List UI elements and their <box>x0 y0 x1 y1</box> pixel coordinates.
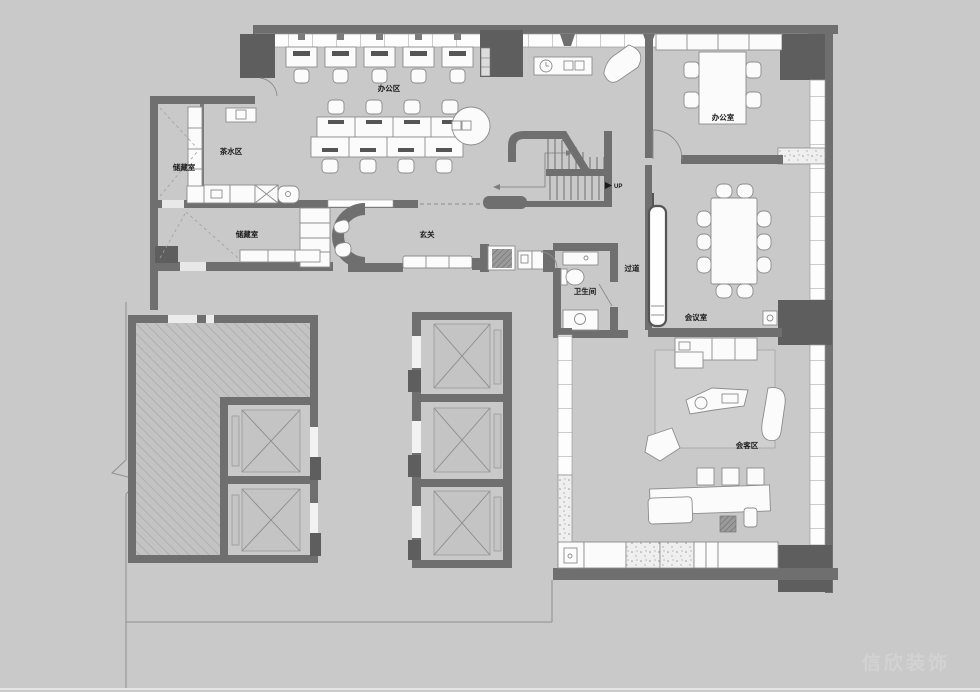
meeting-south-wall <box>648 328 782 337</box>
photo-bottom-edge <box>0 688 980 690</box>
office-area-desk-cluster <box>311 100 490 173</box>
reception-partition <box>558 328 572 568</box>
right-window-band-reception <box>810 345 825 545</box>
bathroom-east-wall-lower <box>610 307 618 330</box>
door-leaf-bathroom-east <box>599 284 612 306</box>
door-jamb <box>408 540 421 560</box>
shaft-wall <box>412 312 512 320</box>
void-west-wall <box>128 315 136 563</box>
room-label-tea-area: 茶水区 <box>219 146 243 156</box>
stair-up-label: UP <box>614 184 622 190</box>
door-jamb <box>310 533 321 556</box>
room-label-entry-hall: 玄关 <box>420 229 435 239</box>
tea-block-top-wall <box>150 96 255 104</box>
elevator-car <box>434 324 501 388</box>
shaft-wall <box>412 394 512 402</box>
media-cabinet <box>649 206 666 326</box>
corner-column-top-left <box>240 34 275 78</box>
void-wall-window <box>168 315 197 323</box>
conference-table <box>711 198 757 284</box>
room-label-storage-1: 储藏室 <box>173 162 196 172</box>
void-east-wall-upper <box>310 315 318 405</box>
desk-chair <box>328 100 344 114</box>
round-table-seat <box>452 121 461 130</box>
staircase: UP <box>483 131 622 209</box>
ac-sill-unit <box>778 148 825 164</box>
top-wall <box>253 25 838 34</box>
console-table <box>534 57 592 75</box>
bar-counter-low <box>648 497 693 525</box>
desk-chair <box>366 100 382 114</box>
office-wall-cabinet <box>656 34 782 50</box>
bathroom-counter <box>563 252 598 265</box>
elevator-car <box>434 408 501 472</box>
toilet-bowl <box>566 269 584 285</box>
right-column-middle <box>778 300 832 345</box>
office-chair <box>684 62 699 78</box>
round-table-seat <box>462 121 471 130</box>
stair-treads-upper <box>548 139 604 169</box>
elevator-car <box>434 491 501 555</box>
office-chair <box>746 92 761 108</box>
elevators-left <box>220 397 321 563</box>
desk-chair <box>398 159 414 173</box>
shoe-bench <box>403 256 472 268</box>
shaft-wall <box>220 476 318 484</box>
stool <box>747 468 764 485</box>
door-swing-tea-entry <box>260 78 277 96</box>
office-chair <box>684 92 699 108</box>
curved-feature-wall <box>332 203 365 269</box>
elevator-door-opening <box>310 427 318 457</box>
elevator-door-opening <box>412 336 421 368</box>
elevators-middle <box>408 312 512 568</box>
room-label-corridor: 过道 <box>625 263 640 273</box>
partition-cap <box>558 328 572 335</box>
elevator-door-opening <box>412 506 421 538</box>
floor-outlet-box <box>763 311 777 325</box>
bottom-cabinet-row <box>558 542 778 568</box>
floor-plan-canvas: UP <box>0 0 980 692</box>
bathroom-west-wall <box>553 268 561 338</box>
door-jamb <box>408 370 421 392</box>
dark-equipment-box <box>155 246 178 263</box>
elevator-car <box>232 489 300 551</box>
walk-line-arrow-start <box>493 184 500 190</box>
bathroom <box>480 243 628 338</box>
glass-partition <box>558 335 572 475</box>
stair-curved-wall <box>508 131 590 170</box>
tea-sink <box>278 186 299 203</box>
room-label-bathroom: 卫生间 <box>574 286 597 296</box>
desk-chair <box>442 100 458 114</box>
niche-cabinet <box>518 251 532 269</box>
office-south-wall <box>681 155 783 164</box>
elevator-car <box>232 410 300 472</box>
floor-plan-drawing: UP <box>0 0 980 692</box>
private-office-room <box>645 34 823 164</box>
shaft-wall <box>412 479 512 487</box>
door-jamb <box>408 455 421 477</box>
mirror-hatch <box>492 249 512 268</box>
office-chair <box>746 62 761 78</box>
entry-hall <box>332 203 483 272</box>
tea-appliance-cabinet <box>204 185 230 203</box>
room-label-meeting-room: 会议室 <box>685 312 708 322</box>
desk-chair <box>360 159 376 173</box>
storage2-door-opening <box>180 262 206 271</box>
meeting-room <box>645 165 782 337</box>
watermark-text: 信欣装饰 <box>862 651 950 674</box>
room-label-reception: 会客区 <box>736 440 759 450</box>
elevator-door-opening <box>412 421 421 453</box>
bathroom-north-wall <box>553 243 618 251</box>
decor-blob-2 <box>335 243 351 257</box>
room-label-office-area: 办公区 <box>378 83 401 93</box>
shaft-wall <box>503 312 512 568</box>
bottom-wall-right <box>553 568 838 580</box>
shaft-wall <box>412 560 512 568</box>
room-label-private-office: 办公室 <box>712 112 735 122</box>
elevator-door-opening <box>310 503 318 533</box>
stair-right-wall <box>604 131 612 207</box>
stool <box>722 468 739 485</box>
stool <box>697 468 714 485</box>
door-jamb <box>310 457 321 480</box>
vanity-sink <box>563 310 598 330</box>
void-wall-window <box>206 315 214 323</box>
shaft-wall <box>220 555 318 563</box>
right-window-band-office <box>810 80 825 152</box>
void-north-wall <box>128 315 318 323</box>
bar-stool <box>744 508 757 527</box>
bathroom-east-wall-upper <box>610 251 618 282</box>
door-swing-office <box>653 130 682 159</box>
stone-partition <box>558 475 572 545</box>
cabinet-shelf-column <box>481 48 490 76</box>
right-window-band-meeting <box>810 164 825 300</box>
chaise-lounge <box>599 40 646 90</box>
storage-door-opening <box>162 200 184 208</box>
entry-south-wall <box>348 263 403 272</box>
desk-chair <box>436 159 452 173</box>
stone-stool <box>720 516 736 532</box>
stair-mid-rail <box>546 169 612 176</box>
reception-area <box>558 338 785 568</box>
desk-chair <box>322 159 338 173</box>
stair-treads-lower <box>550 176 599 200</box>
room-label-storage-2: 储藏室 <box>236 229 259 239</box>
stair-bottom-rail <box>515 201 612 207</box>
shaft-wall <box>220 397 318 405</box>
corner-sofa-dark <box>782 36 823 78</box>
sofa-chaise <box>675 352 703 368</box>
office-west-wall <box>645 34 653 158</box>
desk-chair <box>404 100 420 114</box>
